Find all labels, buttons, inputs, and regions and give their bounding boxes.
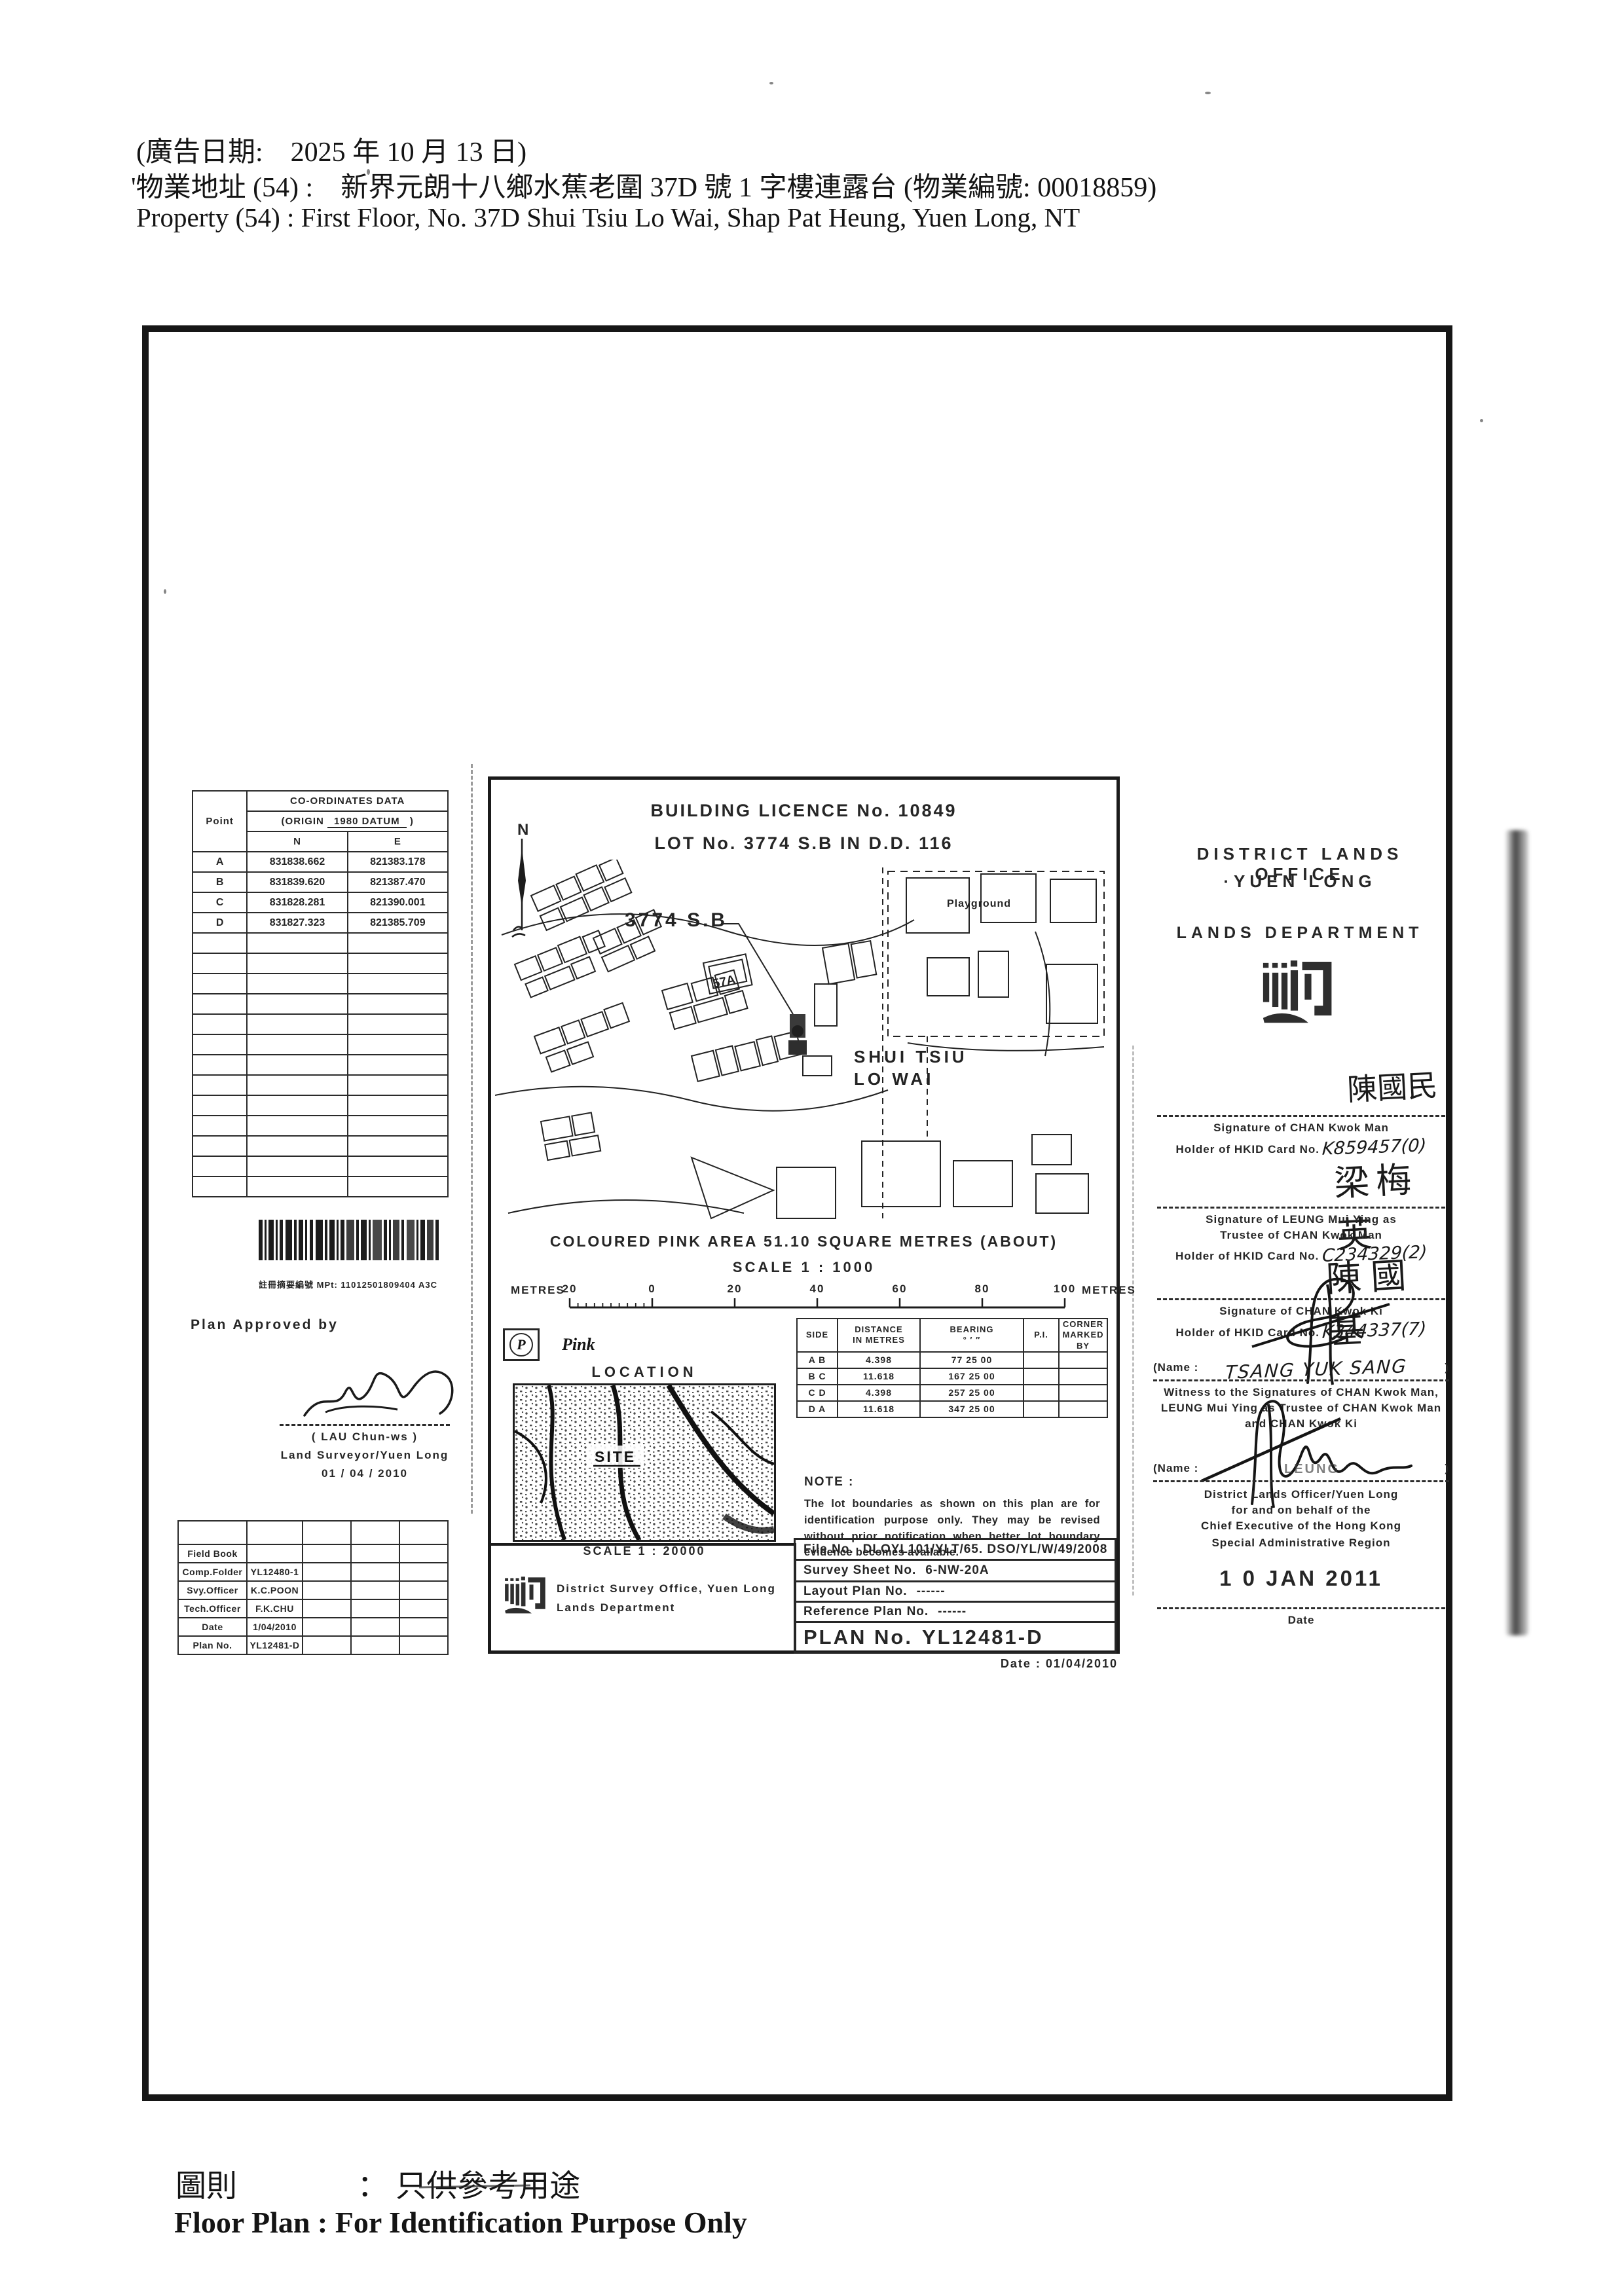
scale-bar: METRES 20 0 20 40 60 80 100 METRES: [511, 1279, 1103, 1313]
signature-chan-kwok-man-handwriting: 陳國民: [1346, 1061, 1438, 1109]
signature-caption: Trustee of CHAN Kwok Man: [1157, 1229, 1445, 1242]
plan-no-row: PLAN No. YL12481-D: [794, 1623, 1116, 1654]
yuen-long-line: ·YUEN LONG: [1149, 871, 1450, 892]
scalebar-tick: 60: [893, 1283, 908, 1296]
fb-value: K.C.POON: [247, 1581, 303, 1599]
scalebar-tick: 0: [648, 1283, 655, 1296]
plan-title-line1: BUILDING LICENCE No. 10849: [491, 801, 1116, 821]
issuing-office-line2: Lands Department: [557, 1599, 776, 1618]
location-map-texture: SITE: [515, 1385, 774, 1540]
fb-label: Plan No.: [178, 1636, 247, 1654]
coord-n: 831828.281: [247, 892, 347, 913]
officer-caption-1: District Lands Officer/Yuen Long: [1137, 1488, 1465, 1501]
table-row: Svy.Officer K.C.POON: [178, 1581, 448, 1599]
plan-date-line: Date : 01/04/2010: [934, 1657, 1118, 1671]
cadastral-map: 3774 S.B 57A SHUI TSIU LO WAI Playground: [495, 860, 1117, 1228]
footer-zh-label: 圖則: [175, 2170, 237, 2204]
scalebar-tick: 100: [1054, 1283, 1076, 1296]
scalebar-tick: 20: [728, 1283, 743, 1296]
sides-table: SIDE DISTANCE IN METRES BEARING ° ′ ″ P.…: [796, 1318, 1108, 1418]
survey-sheet-label: Survey Sheet No.: [803, 1563, 916, 1578]
fb-label: Svy.Officer: [178, 1581, 247, 1599]
surveyor-signature-scribble: [299, 1353, 463, 1425]
reference-plan-value: ------: [938, 1605, 967, 1619]
map-lot-label: 3774 S.B: [625, 909, 728, 931]
barcode-label: 註冊摘要編號 MPt: 11012501809404 A3C: [259, 1278, 442, 1290]
scanned-document-page: (廣告日期: 2025 年 10 月 13 日) '物業地址 (54) : 新界…: [0, 0, 1624, 2296]
north-label: N: [517, 821, 528, 839]
approval-date: 01 / 04 / 2010: [267, 1467, 463, 1480]
coord-e: 821385.709: [348, 913, 448, 933]
table-row: Field Book: [178, 1544, 448, 1563]
table-row: Plan No. YL12481-D: [178, 1636, 448, 1654]
ad-date-line: (廣告日期: 2025 年 10 月 13 日): [136, 130, 526, 170]
coord-col-e: E: [348, 831, 448, 852]
coord-n: 831838.662: [247, 852, 347, 872]
coord-col-n: N: [247, 831, 347, 852]
barcode: 註冊摘要編號 MPt: 11012501809404 A3C: [259, 1220, 442, 1290]
map-playground-label: Playground: [947, 898, 1011, 909]
coord-col-point: Point: [193, 791, 247, 852]
officer-name-stamp: LEUNG: [1284, 1462, 1340, 1477]
table-row: B C11.618 167 25 00: [797, 1368, 1107, 1385]
reference-plan-label: Reference Plan No.: [803, 1605, 929, 1619]
approval-name: ( LAU Chun-ws ): [267, 1430, 463, 1444]
plan-no-value: YL12481-D: [922, 1626, 1044, 1649]
table-row: B 831839.620 821387.470: [193, 872, 448, 892]
table-row: C 831828.281 821390.001: [193, 892, 448, 913]
fieldbook-table: Field Book Comp.Folder YL12480-1 Svy.Off…: [177, 1520, 449, 1655]
fb-value: 1/04/2010: [247, 1618, 303, 1636]
signature-caption: Signature of LEUNG Mui Ying as: [1157, 1213, 1445, 1226]
name-label: (Name :: [1153, 1361, 1198, 1374]
hkid-label: Holder of HKID Card No.: [1175, 1250, 1319, 1262]
coord-e: 821383.178: [348, 852, 448, 872]
map-village-label-1: SHUI TSIU: [854, 1047, 968, 1066]
table-row: Tech.Officer F.K.CHU: [178, 1599, 448, 1618]
footer-zh-separator: ：: [358, 2170, 388, 2204]
coord-title: CO-ORDINATES DATA: [247, 791, 448, 811]
officer-name-line: [1153, 1480, 1449, 1482]
lands-department-logo-icon: [1262, 959, 1335, 1028]
coord-origin-prefix: (ORIGIN: [282, 816, 324, 827]
file-no-row: File No. DLOYL101/YLT/65. DSO/YL/W/49/20…: [794, 1538, 1116, 1561]
fold-line-left: [471, 764, 473, 1514]
coord-e: 821387.470: [348, 872, 448, 892]
property-address-zh: '物業地址 (54) : 新界元朗十八鄉水蕉老圍 37D 號 1 字樓連露台 (…: [131, 165, 1156, 205]
signature-line: [1157, 1207, 1445, 1209]
date-line: [1157, 1607, 1445, 1609]
scalebar-tick: 40: [810, 1283, 825, 1296]
location-map: SITE: [513, 1383, 776, 1542]
name-close: ): [1445, 1361, 1449, 1374]
lands-department-logo-icon: [504, 1576, 547, 1616]
sides-col-distance: DISTANCE IN METRES: [838, 1319, 920, 1352]
file-no-label: File No.: [803, 1542, 854, 1557]
table-row: Date 1/04/2010: [178, 1618, 448, 1636]
date-stamp: 1 0 JAN 2011: [1157, 1566, 1445, 1591]
fb-value: YL12481-D: [247, 1636, 303, 1654]
table-row: A B4.398 77 25 00: [797, 1352, 1107, 1368]
coord-n: 831839.620: [247, 872, 347, 892]
signature-line: [1157, 1115, 1445, 1117]
plan-outer-frame: Point CO-ORDINATES DATA (ORIGIN 1980 DAT…: [142, 325, 1452, 2101]
lands-department-line: LANDS DEPARTMENT: [1149, 924, 1450, 943]
fb-label: Date: [178, 1618, 247, 1636]
fb-value: [247, 1544, 303, 1563]
location-title: LOCATION: [513, 1364, 776, 1381]
witness-name-row: (Name : TSANG YUK SANG ): [1153, 1358, 1449, 1378]
officer-caption-4: Special Administrative Region: [1137, 1537, 1465, 1550]
table-row: A 831838.662 821383.178: [193, 852, 448, 872]
coord-point: B: [193, 872, 247, 892]
coord-point: C: [193, 892, 247, 913]
name-close: ): [1445, 1462, 1449, 1475]
scale-line: SCALE 1 : 1000: [491, 1259, 1116, 1276]
layout-plan-row: Layout Plan No. ------: [794, 1582, 1116, 1603]
layout-plan-value: ------: [917, 1584, 946, 1599]
coordinates-table: Point CO-ORDINATES DATA (ORIGIN 1980 DAT…: [192, 790, 449, 1197]
coord-origin-line: (ORIGIN 1980 DATUM ): [247, 811, 448, 831]
file-no-value: DLOYL101/YLT/65. DSO/YL/W/49/2008: [863, 1542, 1108, 1557]
plan-date-label: Date :: [1001, 1657, 1041, 1670]
fb-label: Comp.Folder: [178, 1563, 247, 1581]
coord-origin-value: 1980 DATUM: [327, 816, 407, 828]
sides-col-side: SIDE: [797, 1319, 838, 1352]
hkid-label: Holder of HKID Card No.: [1176, 1143, 1319, 1156]
scalebar-rule-icon: [511, 1297, 1103, 1311]
property-address-en: Property (54) : First Floor, No. 37D Shu…: [136, 202, 1080, 233]
table-row: Comp.Folder YL12480-1: [178, 1563, 448, 1581]
scalebar-left-label: METRES: [511, 1284, 565, 1297]
date-label: Date: [1157, 1614, 1445, 1627]
sides-col-bearing: BEARING ° ′ ″: [920, 1319, 1024, 1352]
plan-title-line2: LOT No. 3774 S.B IN D.D. 116: [491, 833, 1116, 854]
officer-caption-3: Chief Executive of the Hong Kong: [1137, 1520, 1465, 1533]
survey-sheet-row: Survey Sheet No. 6-NW-20A: [794, 1561, 1116, 1582]
coord-e: 821390.001: [348, 892, 448, 913]
table-row: C D4.398 257 25 00: [797, 1385, 1107, 1401]
barcode-bars-icon: [259, 1220, 442, 1273]
sides-col-pi: P.I.: [1024, 1319, 1059, 1352]
table-row: D 831827.323 821385.709: [193, 913, 448, 933]
reference-plan-row: Reference Plan No. ------: [794, 1603, 1116, 1623]
scalebar-tick: 80: [975, 1283, 990, 1296]
footer-caption-en: Floor Plan : For Identification Purpose …: [174, 2205, 747, 2240]
fold-line-right: [1132, 1046, 1134, 1595]
plan-approved-label: Plan Approved by: [191, 1317, 339, 1333]
scan-streak-artifact: [1505, 830, 1528, 1635]
map-village-label-2: LO WAI: [854, 1069, 934, 1089]
legend-symbol-box: P: [503, 1328, 540, 1361]
fb-value: F.K.CHU: [247, 1599, 303, 1618]
footer-caption-zh: 圖則 ： 只供參考用途: [175, 2160, 580, 2206]
circled-p-icon: P: [509, 1333, 533, 1357]
issuing-office-text: District Survey Office, Yuen Long Lands …: [557, 1580, 776, 1618]
reference-stack: File No. DLOYL101/YLT/65. DSO/YL/W/49/20…: [794, 1538, 1116, 1654]
coord-point: A: [193, 852, 247, 872]
scalebar-tick: 20: [563, 1283, 578, 1296]
officer-name-row: (Name : LEUNG ): [1153, 1459, 1449, 1479]
table-row: D A11.618 347 25 00: [797, 1401, 1107, 1417]
location-site-label: SITE: [595, 1448, 636, 1465]
plan-date-value: 01/04/2010: [1046, 1657, 1118, 1670]
scalebar-right-label: METRES: [1082, 1284, 1136, 1297]
plan-sheet-panel: BUILDING LICENCE No. 10849 LOT No. 3774 …: [488, 776, 1120, 1654]
name-label: (Name :: [1153, 1462, 1198, 1475]
legend-pink-label: Pink: [562, 1335, 595, 1355]
witness-name-line: [1153, 1379, 1449, 1381]
coord-n: 831827.323: [247, 913, 347, 933]
approval-title: Land Surveyor/Yuen Long: [253, 1449, 476, 1462]
fb-label: Tech.Officer: [178, 1599, 247, 1618]
note-label: NOTE :: [804, 1475, 854, 1489]
plan-no-label: PLAN No.: [803, 1626, 913, 1649]
issuing-office-line1: District Survey Office, Yuen Long: [557, 1580, 776, 1599]
fb-label: Field Book: [178, 1544, 247, 1563]
sides-col-corner: CORNER MARKED BY: [1059, 1319, 1107, 1352]
coord-origin-suffix: ): [410, 816, 414, 827]
approval-sign-line: [280, 1424, 450, 1426]
survey-sheet-value: 6-NW-20A: [925, 1563, 989, 1578]
layout-plan-label: Layout Plan No.: [803, 1584, 908, 1599]
coord-point: D: [193, 913, 247, 933]
officer-caption-2: for and on behalf of the: [1137, 1504, 1465, 1517]
coloured-area-line: COLOURED PINK AREA 51.10 SQUARE METRES (…: [491, 1233, 1116, 1250]
issuing-office-box: District Survey Office, Yuen Long Lands …: [491, 1543, 796, 1654]
signature-caption: Signature of CHAN Kwok Man: [1157, 1121, 1445, 1135]
fb-value: YL12480-1: [247, 1563, 303, 1581]
site-lot-shading: [788, 1014, 807, 1055]
